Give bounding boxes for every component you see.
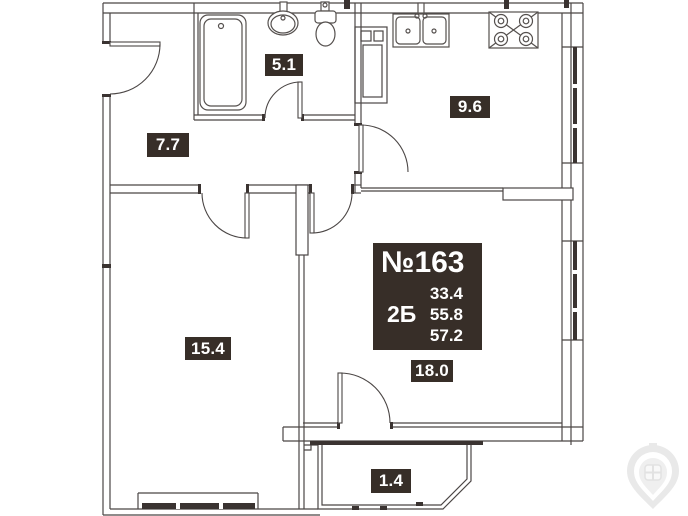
unit-info-box: №163 2Б 33.4 55.8 57.2 (373, 243, 482, 350)
sink-icon (268, 2, 298, 35)
balcony-door (338, 373, 390, 423)
toilet-icon (315, 2, 336, 46)
unit-area-value-3: 57.2 (430, 325, 463, 346)
unit-number: №163 (381, 246, 463, 280)
room-door (202, 193, 249, 238)
room-area-label-hallway: 7.7 (147, 133, 189, 157)
walls (103, 3, 583, 515)
stove-icon (489, 12, 538, 48)
room-area-label-balcony: 1.4 (371, 469, 411, 493)
floor-plan: 5.1 7.7 9.6 15.4 18.0 1.4 №163 2Б 33.4 5… (0, 0, 688, 516)
kitchen-sink-icon (393, 3, 449, 47)
watermark-logo (627, 443, 679, 509)
bathroom-door (265, 82, 302, 118)
entrance-door (110, 42, 160, 94)
kitchen-door (359, 125, 408, 172)
bathtub-icon (200, 15, 246, 110)
ventilation-shaft-icon (355, 27, 387, 103)
room-area-label-room: 15.4 (185, 337, 231, 360)
unit-area-value-2: 55.8 (430, 304, 463, 325)
unit-area-value-1: 33.4 (430, 283, 463, 304)
room-area-label-kitchen: 9.6 (450, 96, 490, 118)
room-area-label-living-room: 18.0 (411, 360, 453, 382)
room-area-label-bathroom: 5.1 (265, 54, 303, 76)
windows (102, 0, 578, 510)
fixtures (200, 2, 538, 110)
living-room-door (310, 193, 352, 233)
doors (110, 42, 408, 423)
floor-plan-drawing (0, 0, 688, 516)
unit-type: 2Б (381, 301, 416, 328)
